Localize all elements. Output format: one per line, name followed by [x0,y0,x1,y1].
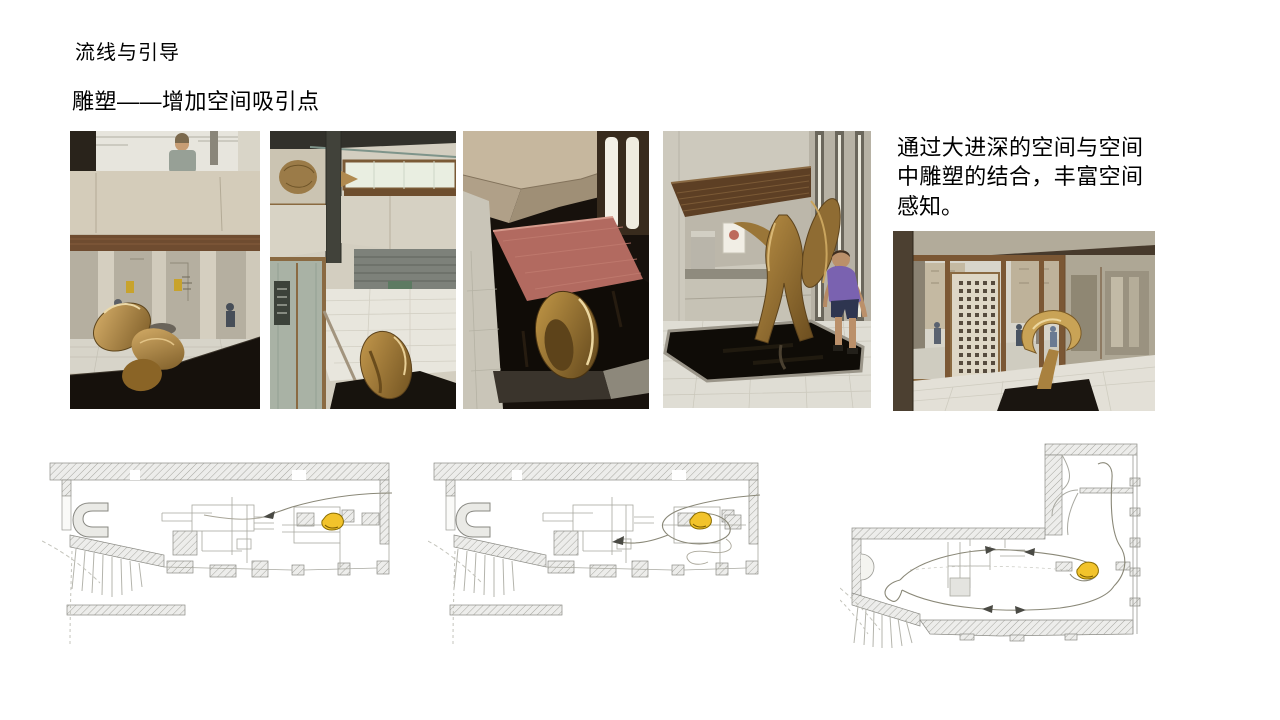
photo-5-image [893,231,1155,411]
floor-plan-1 [42,455,397,650]
presentation-slide: 流线与引导 雕塑——增加空间吸引点 通过大进深的空间与空间中雕塑的结合，丰富空间… [0,0,1280,720]
sculpture-location-marker [1077,562,1099,579]
annotation-text: 通过大进深的空间与空间中雕塑的结合，丰富空间感知。 [897,133,1143,221]
page-subtitle: 雕塑——增加空间吸引点 [72,84,320,116]
sculpture-location-marker [322,513,344,530]
flow-arrowhead [263,511,275,519]
plan-3-drawing [840,438,1150,653]
plan-1-drawing [42,455,397,650]
photo-sculpture-overhead-corner [270,131,456,409]
photo-sculpture-entrance-hall [70,131,260,409]
photo-4-image [663,131,871,408]
page-title: 流线与引导 [75,36,180,65]
flow-arrowhead [612,536,624,545]
floor-plan-3 [840,438,1150,653]
circulation-flow-line [268,493,392,515]
plan-2-drawing [428,455,763,650]
photo-sculpture-pool-child [663,131,871,408]
photo-1-image [70,131,260,409]
floor-plan-2 [428,455,763,650]
photo-sculpture-red-platform-pool [463,131,649,409]
photo-showroom-entrance [893,231,1155,411]
photo-2-image [270,131,456,409]
photo-3-image [463,131,649,409]
